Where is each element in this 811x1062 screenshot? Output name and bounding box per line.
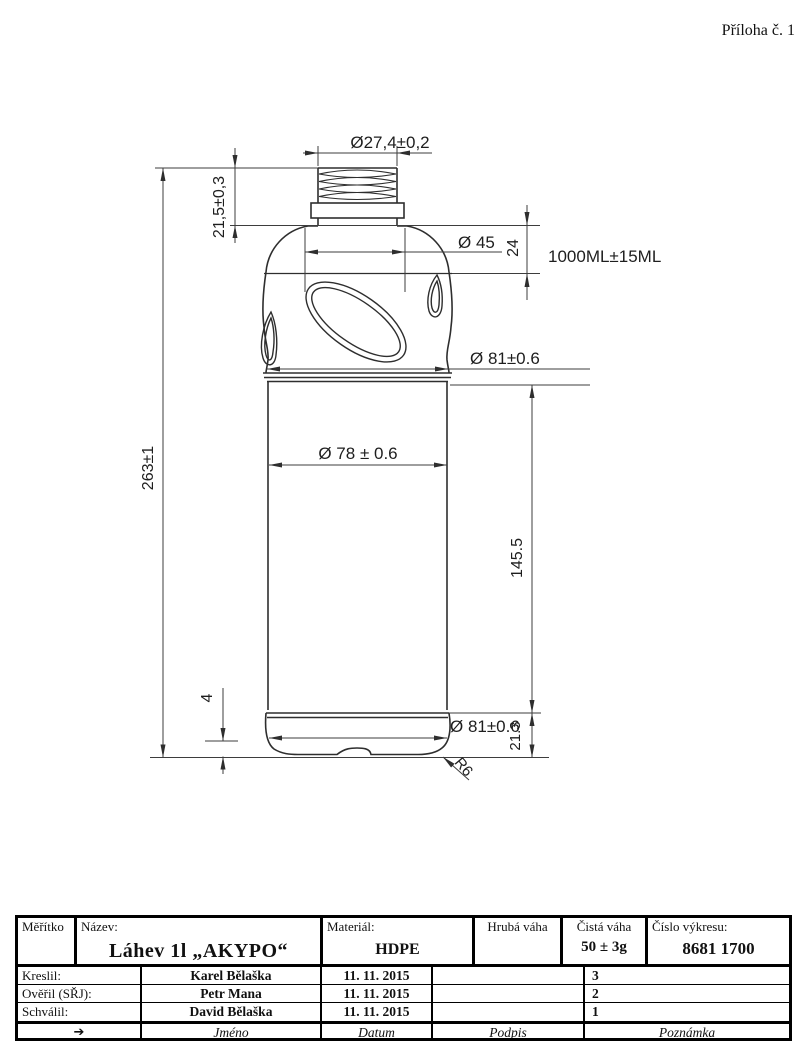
signature-value — [433, 967, 583, 968]
dim-body-height: 145.5 — [509, 538, 526, 578]
row-overil-note: 2 — [585, 985, 789, 1003]
note-value: 3 — [585, 967, 789, 984]
gross-weight-cell: Hrubá váha — [475, 918, 563, 967]
footer-signature-cell: Podpis — [433, 1024, 585, 1038]
drawing-number-cell: Číslo výkresu: 8681 1700 — [648, 918, 789, 967]
footer-name-label: Jméno — [142, 1024, 320, 1038]
dim-neck-height: 21,5±0,3 — [211, 176, 228, 238]
drawing-page: Příloha č. 1 — [0, 0, 811, 1062]
row-kreslil-name: Karel Bělaška — [142, 967, 322, 985]
note-value: 2 — [585, 985, 789, 1002]
material-value: HDPE — [323, 941, 472, 959]
note-value: 1 — [585, 1003, 789, 1020]
row-overil-role: Ověřil (SŘJ): — [18, 985, 142, 1003]
date-value: 11. 11. 2015 — [322, 1003, 431, 1020]
row-overil-name: Petr Mana — [142, 985, 322, 1003]
dim-neck-thread-diameter: Ø27,4±0,2 — [350, 133, 429, 152]
net-weight-label: Čistá váha — [563, 918, 645, 935]
footer-date-label: Datum — [322, 1024, 431, 1038]
row-schvalil-name: David Bělaška — [142, 1003, 322, 1024]
row-overil-signature — [433, 985, 585, 1003]
footer-arrow-cell: ➔ — [18, 1024, 142, 1038]
row-kreslil-note: 3 — [585, 967, 789, 985]
scale-label: Měřítko — [18, 918, 74, 935]
net-weight-value: 50 ± 3g — [563, 939, 645, 956]
title-block: Měřítko Název: Láhev 1l „AKYPO“ Materiál… — [15, 915, 792, 1041]
row-kreslil-date: 11. 11. 2015 — [322, 967, 433, 985]
row-schvalil-date: 11. 11. 2015 — [322, 1003, 433, 1024]
dimension-lines — [150, 146, 590, 780]
gross-weight-label: Hrubá váha — [475, 918, 560, 935]
dim-volume: 1000ML±15ML — [548, 247, 661, 266]
date-value: 11. 11. 2015 — [322, 967, 431, 984]
dim-base-corner-radius: R6 — [451, 754, 476, 780]
footer-note-label: Poznámka — [585, 1024, 789, 1038]
row-overil-date: 11. 11. 2015 — [322, 985, 433, 1003]
name-cell: Název: Láhev 1l „AKYPO“ — [77, 918, 323, 967]
date-value: 11. 11. 2015 — [322, 985, 431, 1002]
dim-base-section-height: 21.3 — [507, 721, 524, 750]
material-cell: Materiál: HDPE — [323, 918, 475, 967]
footer-name-cell: Jméno — [142, 1024, 322, 1038]
dim-base-ring-height: 4 — [199, 693, 216, 702]
name-value: David Bělaška — [142, 1003, 320, 1020]
bottle-technical-drawing: Ø27,4±0,2 21,5±0,3 263±1 Ø 45 24 1000ML±… — [0, 0, 811, 900]
role-label: Schválil: — [18, 1003, 140, 1021]
drawing-title: Láhev 1l „AKYPO“ — [77, 940, 320, 963]
drawing-number-label: Číslo výkresu: — [648, 918, 789, 935]
footer-date-cell: Datum — [322, 1024, 433, 1038]
row-schvalil-signature — [433, 1003, 585, 1024]
dim-neck-base-diameter: Ø 45 — [458, 233, 495, 252]
name-label: Název: — [77, 918, 320, 935]
footer-signature-label: Podpis — [433, 1024, 583, 1038]
neck-threads — [319, 170, 396, 200]
footer-note-cell: Poznámka — [585, 1024, 789, 1038]
scale-cell: Měřítko — [18, 918, 77, 967]
name-value: Petr Mana — [142, 985, 320, 1002]
row-schvalil-role: Schválil: — [18, 1003, 142, 1024]
row-schvalil-note: 1 — [585, 1003, 789, 1024]
drawing-number-value: 8681 1700 — [648, 939, 789, 959]
row-kreslil-role: Kreslil: — [18, 967, 142, 985]
grip-panel — [261, 267, 442, 378]
row-kreslil-signature — [433, 967, 585, 985]
signature-value — [433, 985, 583, 986]
dim-body-diameter: Ø 78 ± 0.6 — [318, 444, 397, 463]
net-weight-cell: Čistá váha 50 ± 3g — [563, 918, 648, 967]
signature-value — [433, 1003, 583, 1004]
role-label: Ověřil (SŘJ): — [18, 985, 140, 1003]
dim-shoulder-height: 24 — [505, 239, 522, 257]
name-value: Karel Bělaška — [142, 967, 320, 984]
arrow-icon: ➔ — [18, 1024, 140, 1038]
material-label: Materiál: — [323, 918, 472, 935]
dim-total-height: 263±1 — [140, 446, 157, 490]
dim-shoulder-max-diameter: Ø 81±0.6 — [470, 349, 540, 368]
role-label: Kreslil: — [18, 967, 140, 985]
